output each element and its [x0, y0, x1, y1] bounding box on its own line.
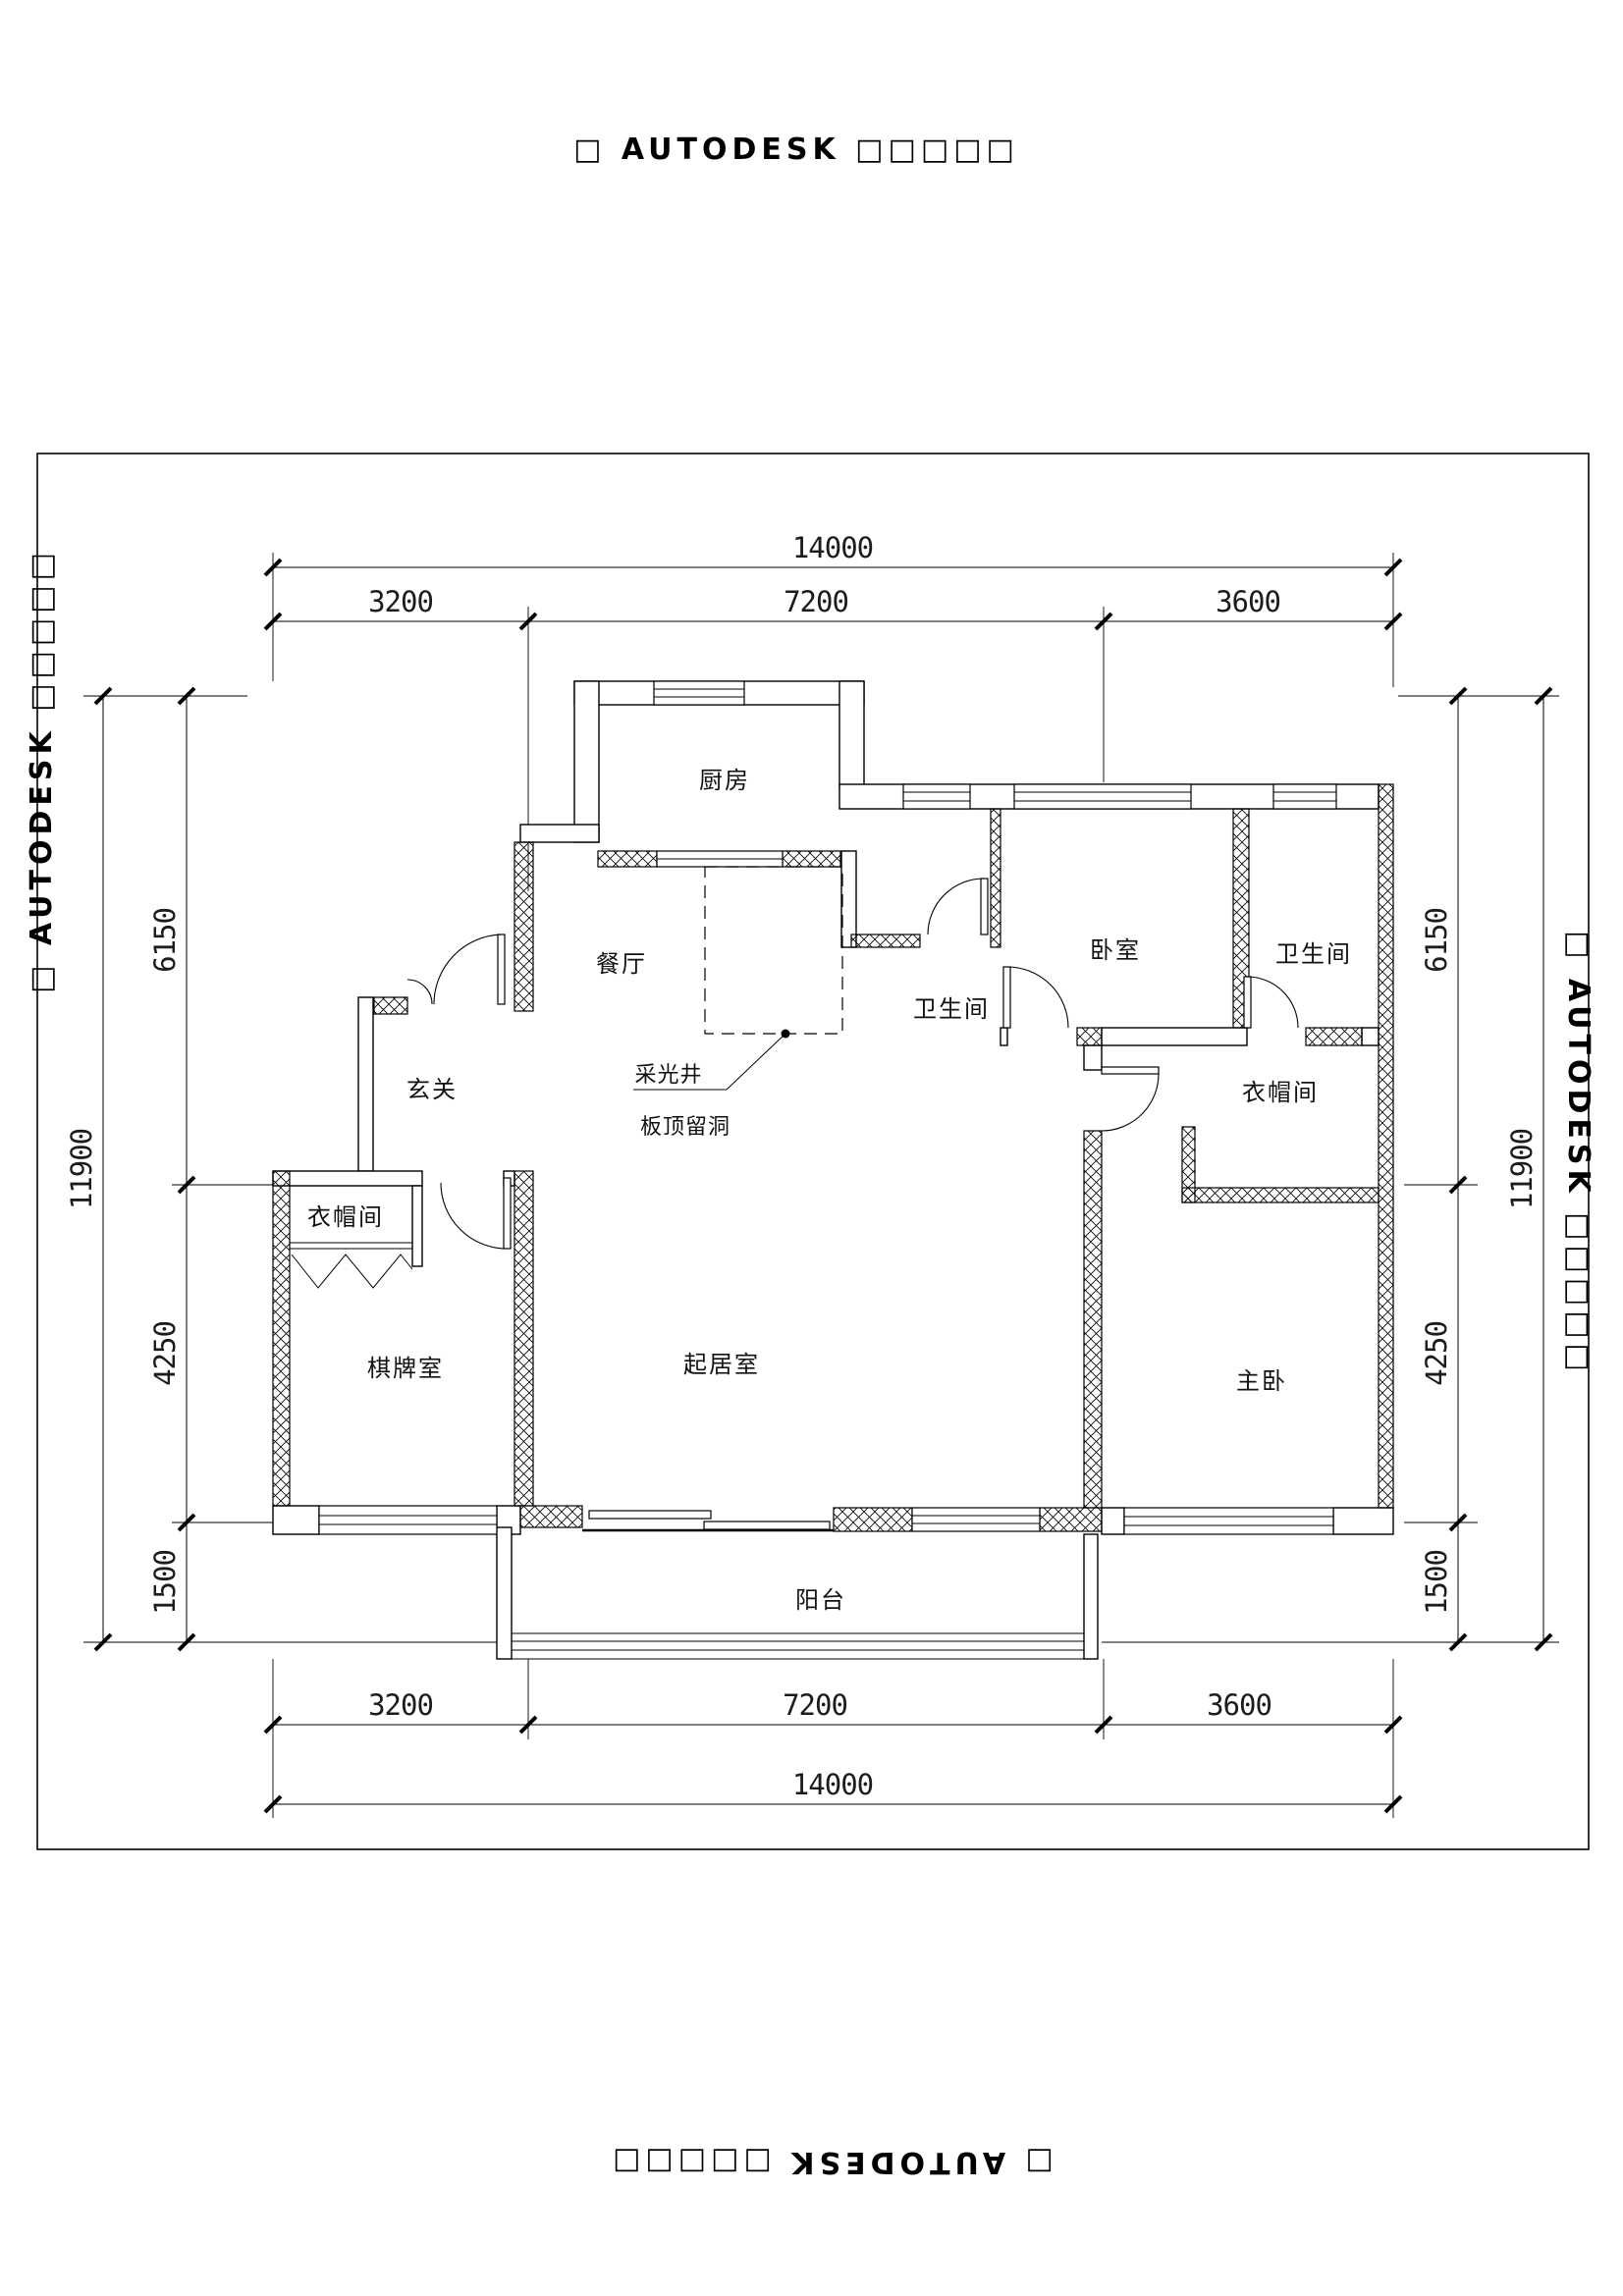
window-living	[912, 1508, 1040, 1531]
watermarks: □ AUTODESK □□□□□ □ AUTODESK □□□□□ □ AUTO…	[25, 133, 1596, 2179]
dim-left-seg-3: 1500	[148, 1550, 182, 1615]
label-closet-left: 衣帽间	[307, 1203, 384, 1231]
label-bath-top: 卫生间	[913, 995, 990, 1023]
label-closet-right: 衣帽间	[1242, 1079, 1319, 1106]
label-living: 起居室	[683, 1351, 760, 1378]
label-master-bedroom: 主卧	[1236, 1367, 1287, 1395]
label-game-room: 棋牌室	[367, 1355, 444, 1382]
dim-top-overall: 14000	[792, 531, 873, 564]
label-light-well: 采光井	[634, 1063, 702, 1088]
floor-plan-canvas: □ AUTODESK □□□□□ □ AUTODESK □□□□□ □ AUTO…	[0, 0, 1623, 2296]
watermark-right: □ AUTODESK □□□□□	[1561, 931, 1596, 1376]
dim-right-seg-2: 4250	[1420, 1321, 1453, 1386]
dim-top-seg-2: 7200	[784, 585, 848, 618]
label-kitchen: 厨房	[699, 767, 750, 794]
window-bath-top	[903, 784, 970, 809]
dim-right-overall: 11900	[1505, 1129, 1539, 1209]
window-kitchen-top	[654, 681, 744, 705]
drawing-border	[37, 454, 1589, 1849]
dim-bottom-seg-3: 3600	[1207, 1688, 1271, 1722]
dim-bottom-seg-1: 3200	[368, 1688, 433, 1722]
sliding-door-living	[582, 1511, 834, 1530]
bath-right-door	[1244, 977, 1298, 1028]
label-foyer: 玄关	[406, 1076, 458, 1103]
walls-hatched	[273, 784, 1393, 1531]
master-bedroom-door	[1102, 1067, 1159, 1131]
wardrobe-symbol	[290, 1186, 412, 1288]
window-master	[1124, 1508, 1333, 1534]
watermark-top: □ AUTODESK □□□□□	[573, 133, 1019, 167]
label-balcony: 阳台	[795, 1586, 846, 1614]
label-bath-right: 卫生间	[1275, 940, 1352, 968]
dim-left-seg-2: 4250	[148, 1321, 182, 1386]
dim-right-seg-3: 1500	[1420, 1550, 1453, 1615]
bath-top-door	[928, 879, 988, 934]
label-dining: 餐厅	[596, 950, 647, 978]
dim-bottom-overall: 14000	[792, 1768, 873, 1801]
drawing-sheet: □ AUTODESK □□□□□ □ AUTODESK □□□□□ □ AUTO…	[0, 0, 1623, 2296]
window-game-room	[319, 1506, 497, 1534]
bedroom-door	[1003, 967, 1068, 1028]
label-slab-opening: 板顶留洞	[640, 1115, 730, 1140]
dim-right-seg-1: 6150	[1420, 908, 1453, 973]
game-room-door	[441, 1178, 511, 1249]
window-bedroom	[1014, 784, 1191, 809]
dim-bottom-seg-2: 7200	[783, 1688, 847, 1722]
window-kitchen-pass	[657, 851, 783, 867]
dim-top-seg-1: 3200	[368, 585, 433, 618]
label-bedroom: 卧室	[1090, 936, 1141, 964]
balcony-railing	[497, 1633, 1098, 1659]
dim-left-overall: 11900	[65, 1129, 98, 1209]
entry-double-door	[407, 934, 505, 1004]
window-bath-right	[1273, 784, 1336, 809]
light-well-symbol	[633, 867, 842, 1090]
dim-left-seg-1: 6150	[148, 908, 182, 973]
dim-top-seg-3: 3600	[1216, 585, 1280, 618]
watermark-left: □ AUTODESK □□□□□	[25, 548, 59, 993]
watermark-bottom: □ AUTODESK □□□□□	[608, 2145, 1054, 2179]
